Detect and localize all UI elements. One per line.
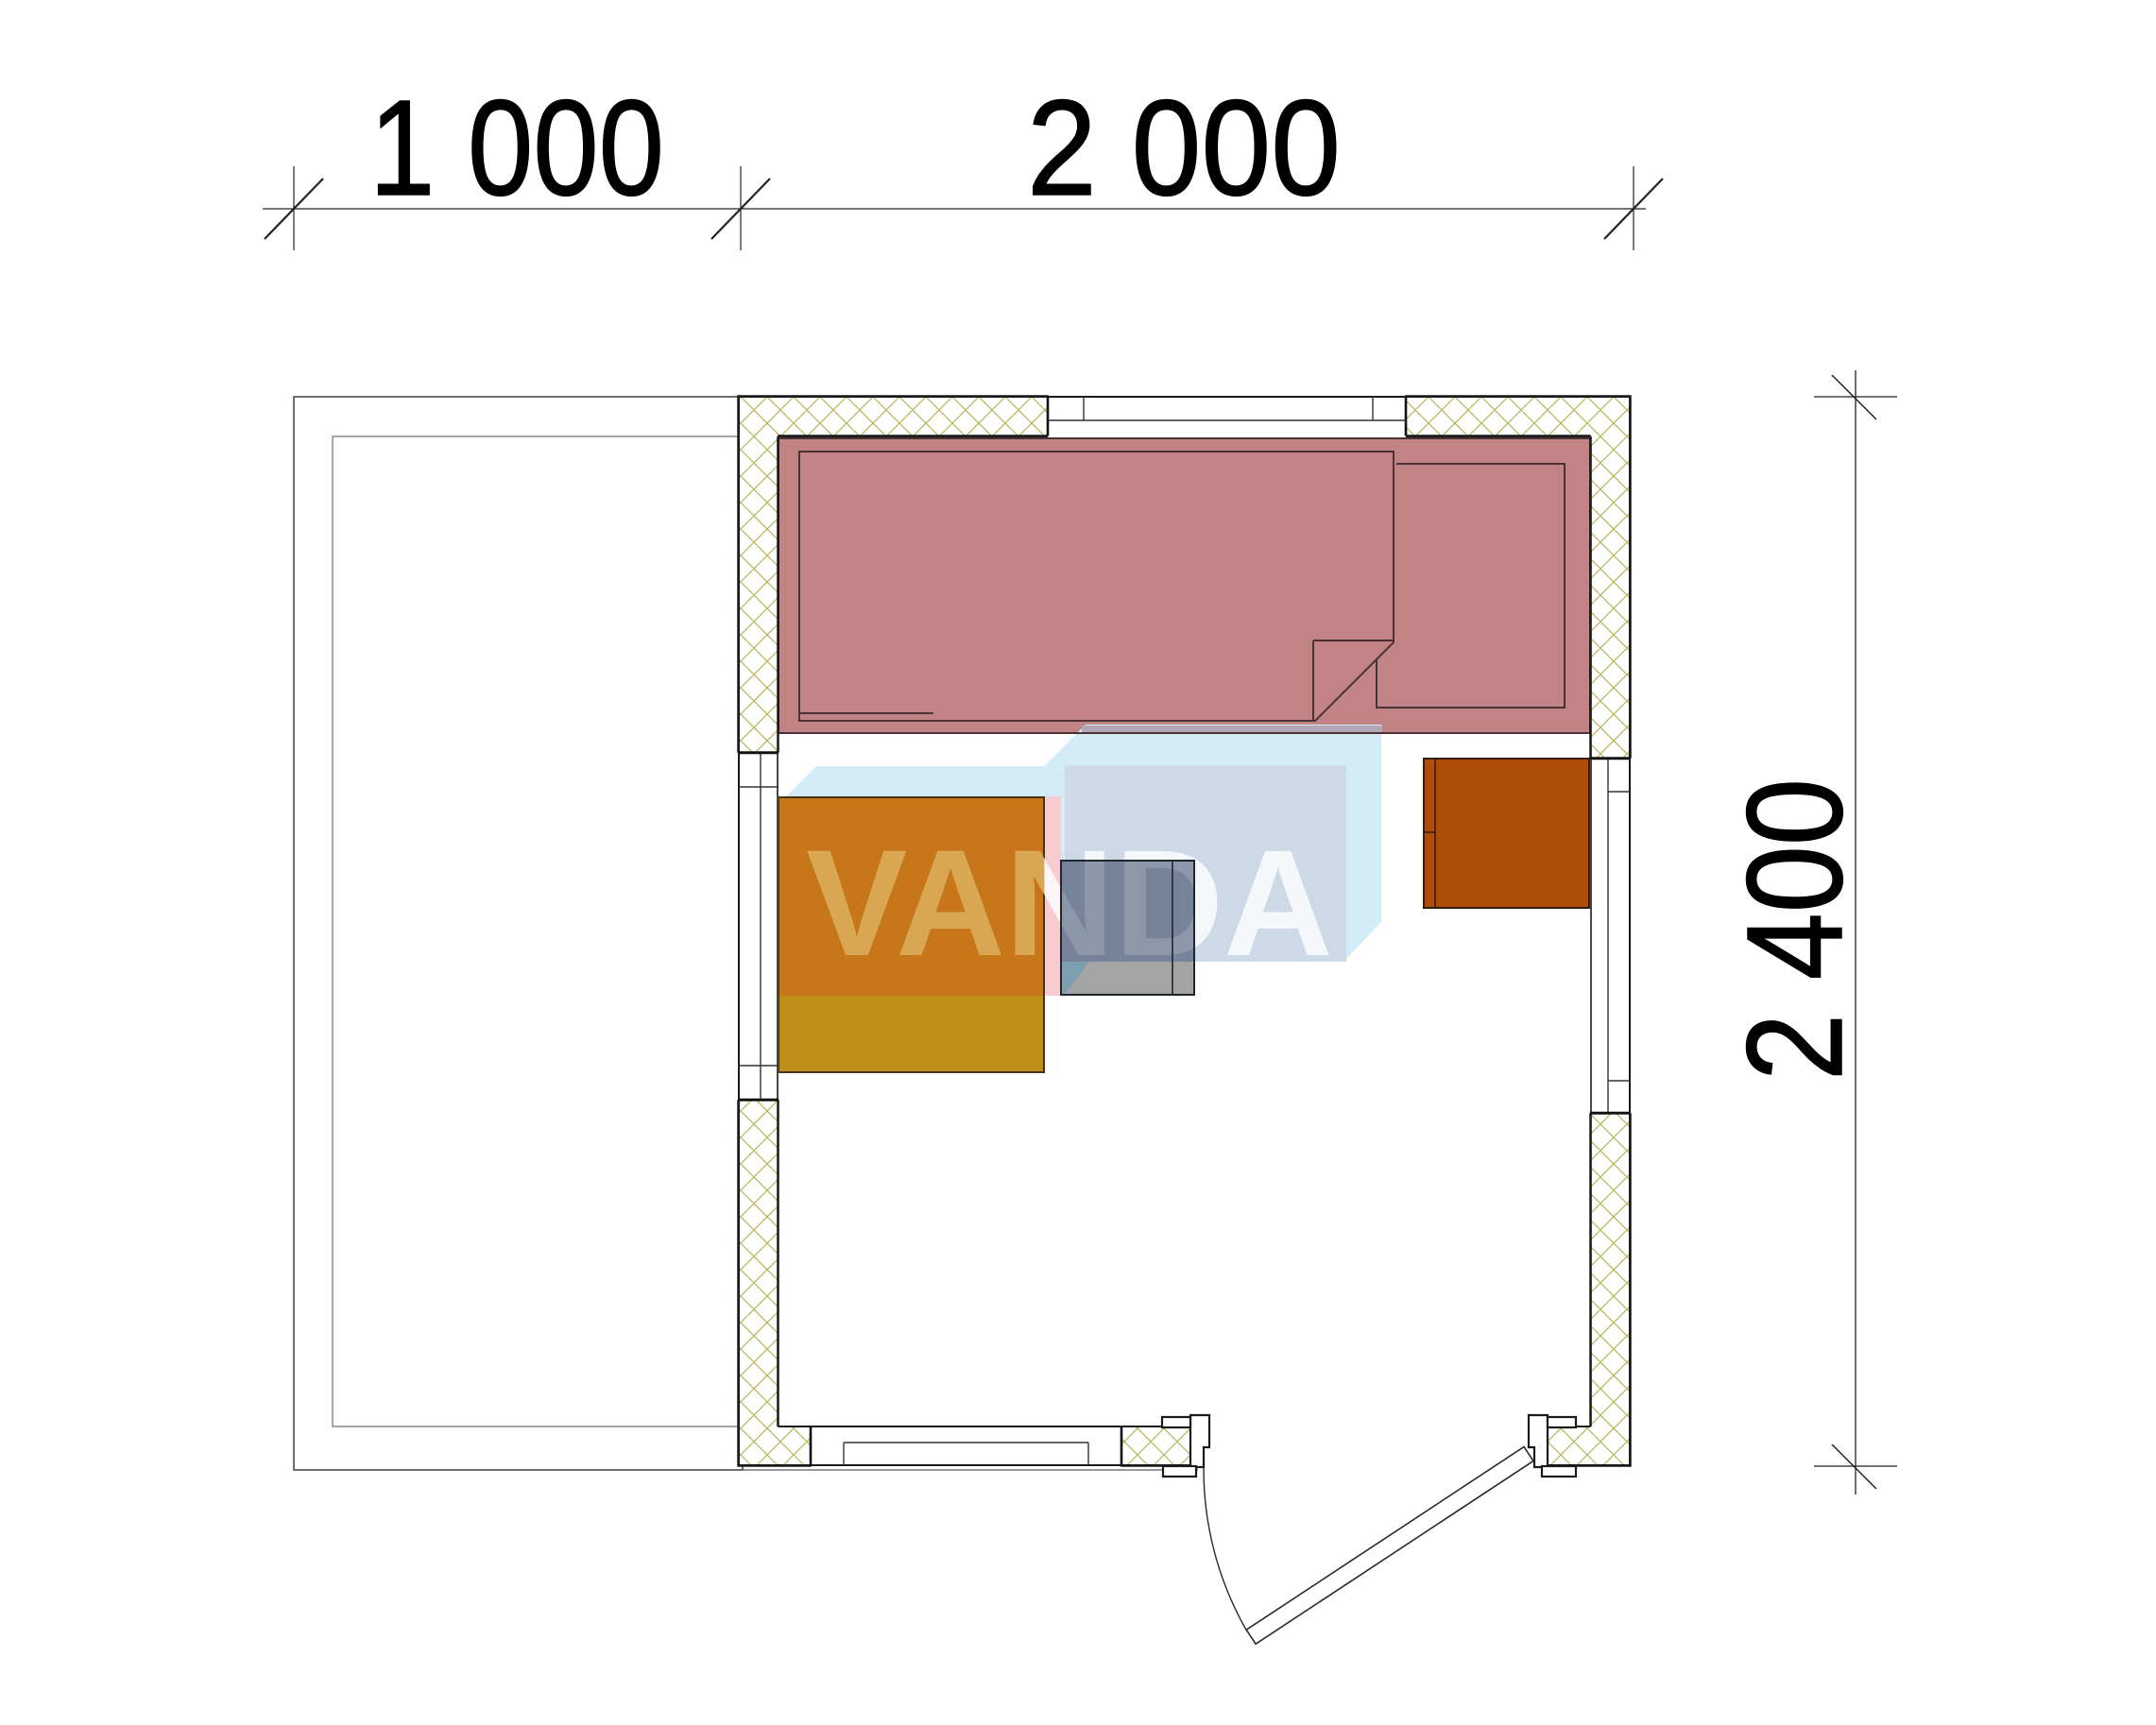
- svg-text:2 400: 2 400: [1719, 778, 1871, 1081]
- svg-text:1 000: 1 000: [369, 72, 664, 224]
- svg-text:2 000: 2 000: [1027, 72, 1341, 224]
